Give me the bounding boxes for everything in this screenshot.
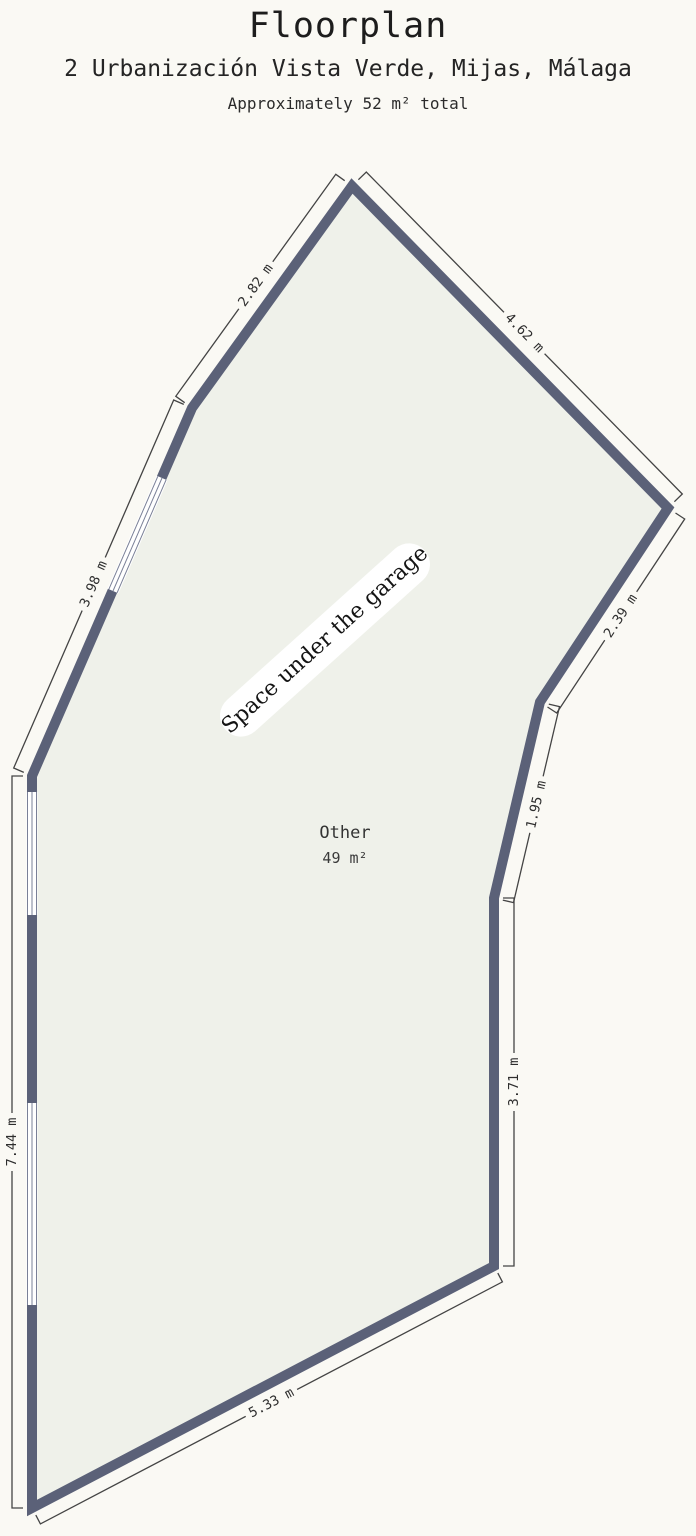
address-subtitle: 2 Urbanización Vista Verde, Mijas, Málag… [0, 56, 696, 82]
dimension-text: 3.71 m [506, 1058, 522, 1107]
room-area: 49 m² [322, 849, 367, 867]
floorplan-drawing: 2.82 m 4.62 m 3.98 m 7.44 m 5.33 m 3.71 … [0, 0, 696, 1536]
room-name: Other [319, 823, 370, 843]
dimension-text: 7.44 m [4, 1118, 20, 1167]
window-left-upper [27, 792, 38, 915]
dimension-label-right-lower: 3.71 m [505, 1053, 523, 1111]
dimension-text: 1.95 m [523, 779, 550, 830]
total-area-note: Approximately 52 m² total [0, 94, 696, 113]
page-title: Floorplan [0, 6, 696, 46]
floorplan-page: Floorplan 2 Urbanización Vista Verde, Mi… [0, 0, 696, 1536]
room-outline [32, 186, 668, 1508]
window-left-lower [27, 1103, 38, 1305]
dimension-label-left: 7.44 m [3, 1113, 21, 1171]
header: Floorplan 2 Urbanización Vista Verde, Mi… [0, 0, 696, 113]
